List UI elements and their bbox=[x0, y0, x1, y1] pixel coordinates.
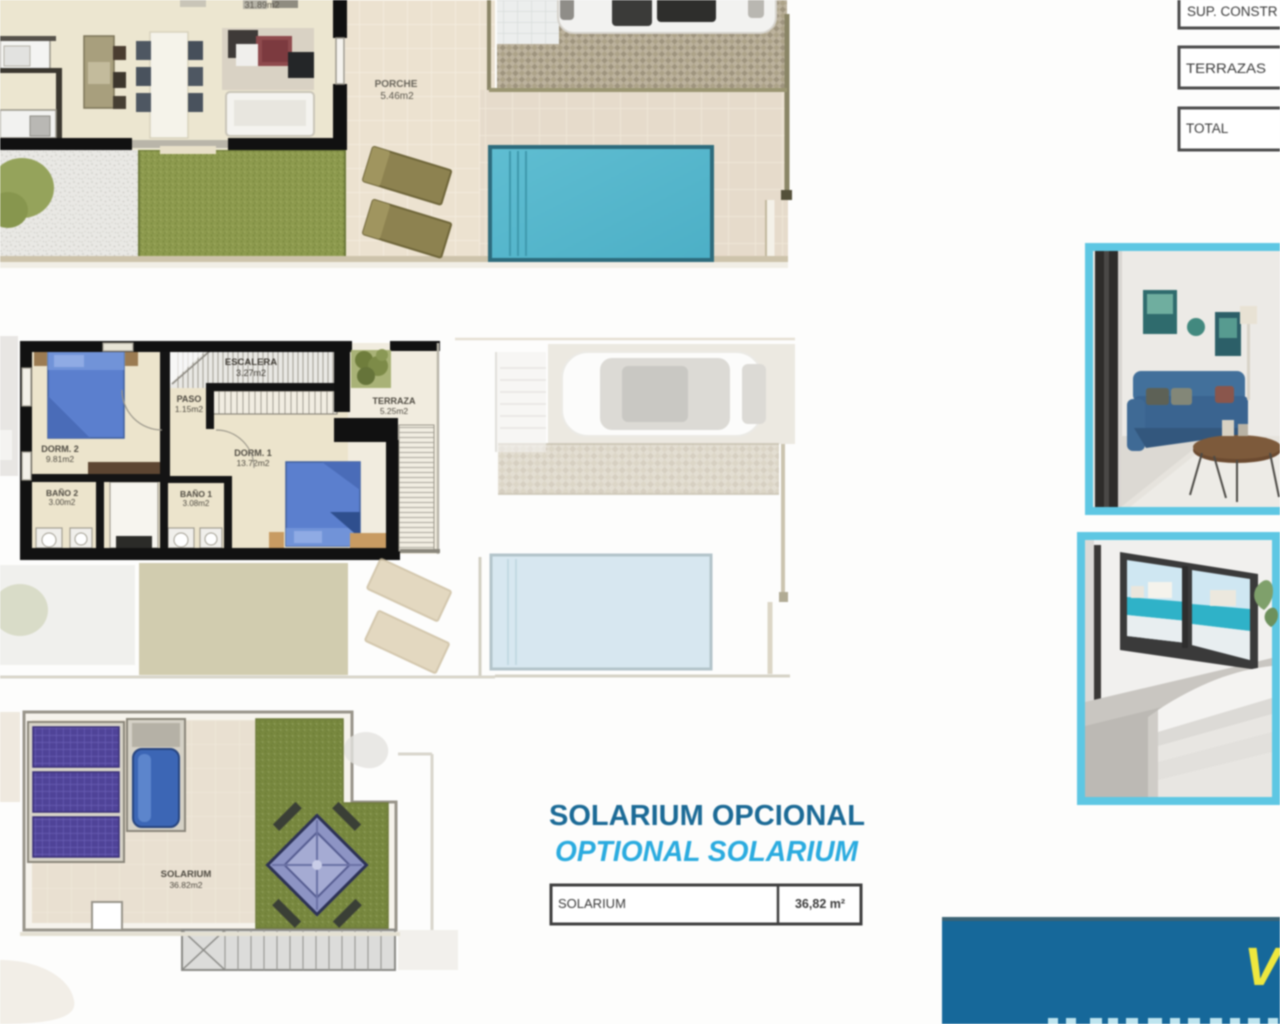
svg-text:V: V bbox=[1244, 937, 1280, 997]
svg-text:SUP. CONSTR: SUP. CONSTR bbox=[1187, 4, 1278, 19]
svg-text:BAÑO 1: BAÑO 1 bbox=[180, 489, 212, 499]
svg-text:PORCHE: PORCHE bbox=[375, 79, 418, 90]
svg-text:ESCALERA: ESCALERA bbox=[225, 357, 277, 368]
svg-text:3.00m2: 3.00m2 bbox=[49, 498, 76, 507]
svg-text:SOLARIUM: SOLARIUM bbox=[558, 896, 626, 911]
svg-text:DORM. 1: DORM. 1 bbox=[234, 448, 272, 458]
svg-text:36,82 m²: 36,82 m² bbox=[795, 897, 845, 911]
svg-text:DORM. 2: DORM. 2 bbox=[41, 444, 79, 454]
svg-text:BAÑO 2: BAÑO 2 bbox=[46, 488, 78, 498]
svg-text:TOTAL: TOTAL bbox=[1186, 121, 1229, 136]
svg-text:3.08m2: 3.08m2 bbox=[183, 499, 210, 508]
svg-text:5.25m2: 5.25m2 bbox=[380, 406, 409, 416]
svg-text:1.15m2: 1.15m2 bbox=[175, 404, 204, 414]
svg-text:PASO: PASO bbox=[177, 394, 202, 404]
svg-text:31.89m2: 31.89m2 bbox=[244, 0, 279, 10]
svg-text:5.46m2: 5.46m2 bbox=[380, 91, 414, 102]
svg-text:TERRAZAS: TERRAZAS bbox=[1186, 61, 1266, 76]
svg-text:TERRAZA: TERRAZA bbox=[373, 396, 416, 406]
svg-text:9.81m2: 9.81m2 bbox=[46, 454, 75, 464]
svg-text:SOLARIUM: SOLARIUM bbox=[161, 869, 212, 880]
svg-text:SOLARIUM OPCIONAL: SOLARIUM OPCIONAL bbox=[549, 800, 865, 832]
svg-text:36.82m2: 36.82m2 bbox=[169, 880, 202, 890]
svg-text:OPTIONAL SOLARIUM: OPTIONAL SOLARIUM bbox=[555, 836, 859, 868]
svg-text:3.27m2: 3.27m2 bbox=[236, 368, 266, 378]
